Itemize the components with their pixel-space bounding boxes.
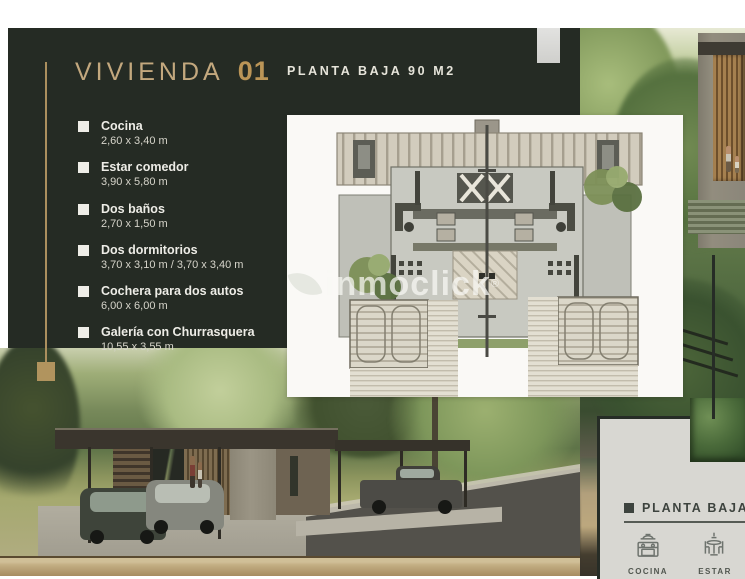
section-title: PLANTA BAJA [642, 501, 745, 515]
legend-label-estar: ESTAR [688, 567, 742, 576]
feature-item: Galería con Churrasquera 10,55 x 3,55 m [78, 325, 278, 354]
carport-post [464, 451, 467, 507]
dining-table-icon [698, 529, 730, 561]
truck-wheel [438, 500, 452, 514]
floor-plan-drawing [287, 115, 683, 397]
door-lintel [698, 42, 745, 55]
feature-label: Cocina [101, 119, 168, 134]
watermark-text: inmoclick [325, 267, 491, 301]
brochure-photo: { "brochure": { "unit_title": "VIVIENDA"… [0, 0, 745, 576]
feature-label: Galería con Churrasquera [101, 325, 255, 340]
flat-roof [55, 428, 338, 449]
page-subtitle: PLANTA BAJA 90 M2 [287, 64, 456, 78]
feature-item: Dos baños 2,70 x 1,50 m [78, 202, 278, 231]
child-figure [735, 156, 739, 173]
feature-dims: 2,60 x 3,40 m [101, 134, 168, 148]
page-top-notch [537, 28, 560, 63]
section-heading: PLANTA BAJA [624, 501, 745, 515]
feature-item: Estar comedor 3,90 x 5,80 m [78, 160, 278, 189]
gray-sedan-car [146, 480, 224, 530]
car-wheel [200, 520, 214, 534]
second-carport-roof [335, 440, 470, 451]
house-wing-wall [276, 447, 330, 515]
decor-frame-line [712, 255, 715, 419]
square-bullet-icon [78, 121, 89, 132]
bush-photo-overlap [690, 398, 745, 462]
car-wheel [90, 530, 104, 544]
registered-mark: ® [491, 278, 499, 290]
car-windows [90, 492, 150, 512]
person-figure [726, 146, 731, 172]
square-bullet-icon [624, 503, 634, 513]
truck-wheel [372, 500, 386, 514]
feature-dims: 3,90 x 5,80 m [101, 175, 189, 189]
feature-dims: 10,55 x 3,55 m [101, 340, 255, 354]
square-bullet-icon [78, 204, 89, 215]
heading-rule [624, 521, 745, 523]
square-bullet-icon [78, 245, 89, 256]
page-title: VIVIENDA 01 [75, 56, 270, 87]
feature-label: Dos dormitorios [101, 243, 243, 258]
feature-dims: 3,70 x 3,10 m / 3,70 x 3,40 m [101, 258, 243, 272]
square-bullet-icon [78, 286, 89, 297]
watermark: inmoclick ® [291, 267, 499, 301]
person-figure [198, 462, 202, 488]
gold-accent-square [37, 362, 55, 381]
feature-label: Dos baños [101, 202, 168, 217]
feature-label: Cochera para dos autos [101, 284, 243, 299]
feature-item: Cocina 2,60 x 3,40 m [78, 119, 278, 148]
truck-windows [400, 469, 434, 478]
feature-dims: 2,70 x 1,50 m [101, 217, 168, 231]
deck-steps [688, 200, 745, 234]
square-bullet-icon [78, 162, 89, 173]
wing-window [290, 456, 298, 496]
car-wheel [154, 520, 168, 534]
feature-item: Cochera para dos autos 6,00 x 6,00 m [78, 284, 278, 313]
carport-post [338, 451, 341, 509]
person-figure [190, 456, 195, 488]
leaf-icon [287, 266, 322, 301]
kitchen-stove-icon [632, 529, 664, 561]
square-bullet-icon [78, 327, 89, 338]
unit-number: 01 [238, 56, 270, 87]
legend-label-cocina: COCINA [618, 567, 678, 576]
feature-item: Dos dormitorios 3,70 x 3,10 m / 3,70 x 3… [78, 243, 278, 272]
feature-list: Cocina 2,60 x 3,40 m Estar comedor 3,90 … [78, 119, 278, 355]
feature-label: Estar comedor [101, 160, 189, 175]
feature-dims: 6,00 x 6,00 m [101, 299, 243, 313]
car-wheel [140, 530, 154, 544]
floor-plan-panel: inmoclick ® [287, 115, 683, 397]
gold-accent-line [45, 62, 47, 372]
gold-footer-band [0, 556, 580, 576]
unit-title: VIVIENDA [75, 58, 224, 87]
